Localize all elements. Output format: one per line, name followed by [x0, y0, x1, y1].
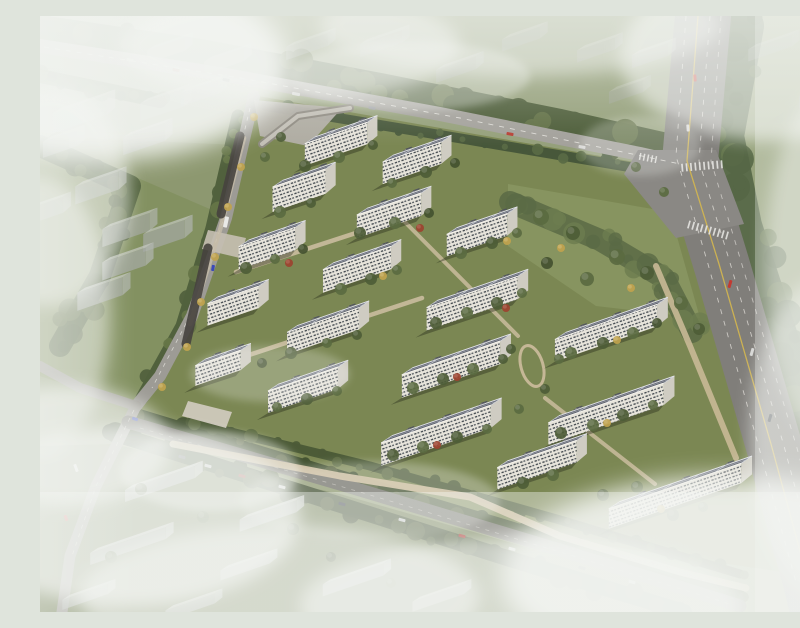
- rendering-canvas: [40, 16, 800, 612]
- rendering-canvas-host: [40, 16, 800, 612]
- aerial-site-rendering: Bird's-eye architectural rendering: rows…: [40, 16, 800, 612]
